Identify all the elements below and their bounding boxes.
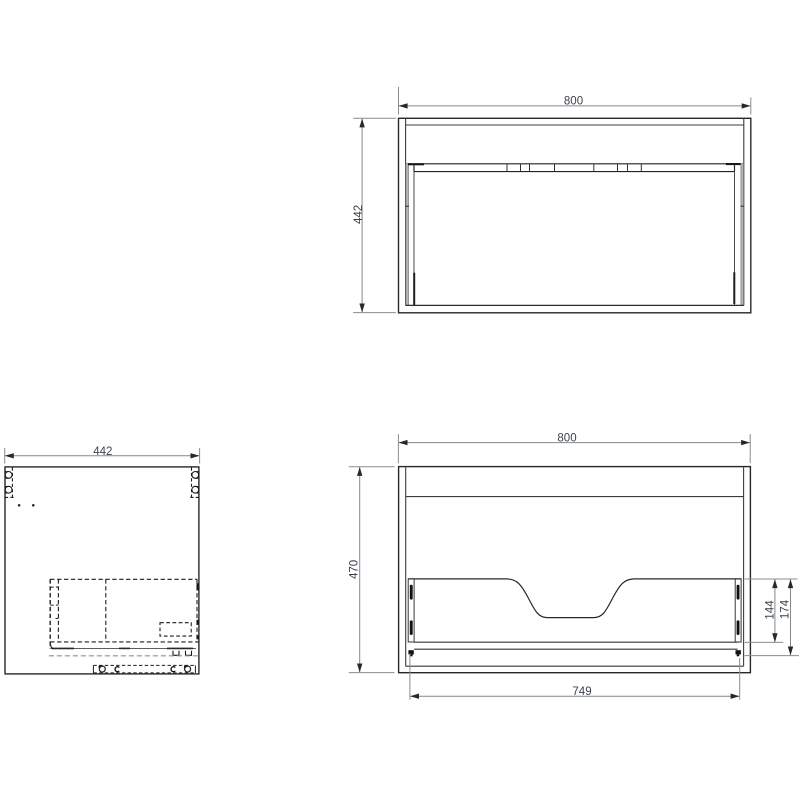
svg-text:174: 174 bbox=[780, 599, 792, 619]
svg-text:749: 749 bbox=[572, 686, 591, 698]
svg-text:144: 144 bbox=[765, 600, 777, 620]
svg-text:800: 800 bbox=[557, 433, 576, 445]
svg-text:442: 442 bbox=[353, 205, 365, 224]
svg-text:470: 470 bbox=[348, 560, 360, 579]
svg-text:800: 800 bbox=[564, 96, 583, 108]
svg-text:442: 442 bbox=[93, 446, 112, 458]
